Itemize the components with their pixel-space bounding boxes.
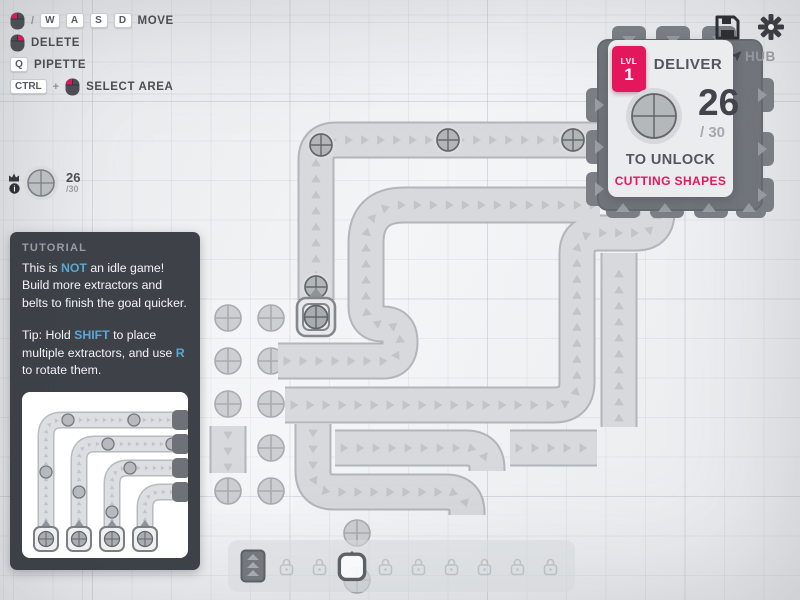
hint-label: MOVE [138,15,174,27]
hub-map-label: HUB [731,49,776,64]
goal-amount: 26 [698,82,739,124]
key-s: S [90,13,108,28]
goal-reward-text: CUTTING SHAPES [608,174,733,188]
building-toolbar [228,540,575,592]
toolbar-slot-locked [501,544,533,588]
goal-title: DELIVER [648,56,728,73]
toolbar-slot-locked [534,544,566,588]
hint-label: SELECT AREA [86,81,173,93]
text-segment: This is [22,261,61,275]
key-d: D [114,13,132,28]
toolbar-slot-locked [303,544,335,588]
pinned-total: /30 [66,185,80,194]
save-button[interactable] [712,12,742,42]
crown-icon [8,173,20,182]
svg-text:i: i [13,184,15,193]
key-w: W [40,13,59,28]
toolbar-slot-locked [402,544,434,588]
lock-icon [509,556,526,577]
hub-goal-panel: LVL 1 DELIVER 26 / 30 TO UNLOCK CUTTING … [608,40,733,197]
belt-icon [240,549,266,583]
lock-icon [278,556,295,577]
toolbar-slot-extractor-selected[interactable] [336,544,368,588]
lock-icon [476,556,493,577]
shape-item [307,131,335,159]
text-segment: to rotate them. [22,363,101,377]
toolbar-slot-locked [270,544,302,588]
mouse-left-icon [10,12,25,30]
key-ctrl: CTRL [10,79,47,94]
hub-label-text: HUB [745,49,776,64]
lock-icon [443,556,460,577]
shape-item [434,126,462,154]
resource-circle [258,391,284,417]
goal-unlock-text: TO UNLOCK [608,152,733,168]
hint-pipette: Q PIPETTE [10,56,174,73]
hint-select-area: CTRL + SELECT AREA [10,78,174,95]
resource-circle [258,478,284,504]
level-label: LVL [621,56,638,66]
resource-circle [215,478,241,504]
resource-circle [258,305,284,331]
highlighted-keyword: R [176,346,185,360]
toolbar-slot-locked [435,544,467,588]
keybinding-hints: / W A S D MOVE DELETE Q PIPETTE CTRL + S… [10,12,174,95]
goal-total: / 30 [700,124,725,141]
text-segment: Tip: Hold [22,328,74,342]
illustration-hub-caps [172,410,188,502]
top-right-buttons [712,12,786,42]
resource-circle [215,391,241,417]
tutorial-title: TUTORIAL [22,242,188,254]
pinned-current: 26 [66,171,80,185]
key-a: A [66,13,84,28]
settings-button[interactable] [756,12,786,42]
info-icon[interactable]: i [9,183,20,194]
pinned-shape-icon [22,164,60,202]
hint-delete: DELETE [10,34,174,51]
highlighted-keyword: NOT [61,261,87,275]
extractor-icon [336,546,368,586]
resource-circle [258,435,284,461]
pinned-goal: i 26 /30 [8,164,80,202]
goal-shape-icon [624,86,684,146]
hint-move: / W A S D MOVE [10,12,174,29]
resource-circle [215,348,241,374]
lock-icon [410,556,427,577]
plus-sign: + [53,81,59,93]
lock-icon [377,556,394,577]
hint-label: PIPETTE [34,59,86,71]
tutorial-paragraph-1: This is NOT an idle game! Build more ext… [22,260,188,312]
hint-label: DELETE [31,37,80,49]
toolbar-slot-locked [468,544,500,588]
highlighted-keyword: SHIFT [74,328,110,342]
key-q: Q [10,57,28,72]
mouse-left-icon [65,78,80,96]
toolbar-slot-locked [369,544,401,588]
tutorial-panel: TUTORIAL This is NOT an idle game! Build… [10,232,200,570]
level-number: 1 [624,66,633,83]
shape-item [559,126,587,154]
toolbar-slot-belt[interactable] [237,544,269,588]
lock-icon [311,556,328,577]
mouse-right-icon [10,34,25,52]
lock-icon [542,556,559,577]
gear-icon [757,13,785,41]
save-icon [714,14,741,41]
tutorial-paragraph-2: Tip: Hold SHIFT to place multiple extrac… [22,327,188,379]
separator: / [31,15,34,27]
tutorial-illustration [22,392,188,558]
resource-circle [215,305,241,331]
